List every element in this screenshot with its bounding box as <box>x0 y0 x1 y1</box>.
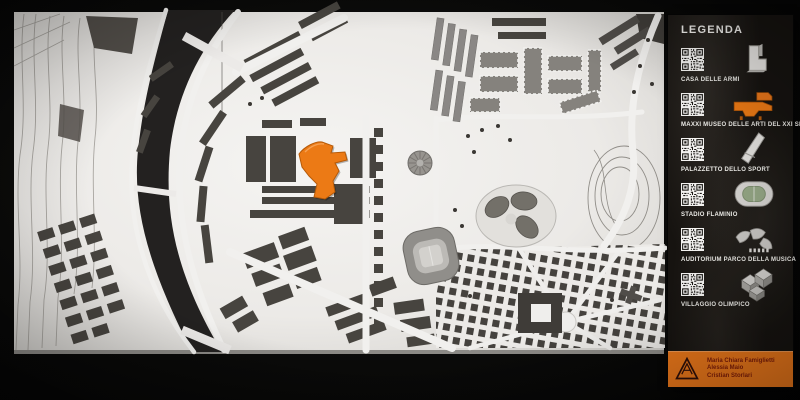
model-photo: LEGENDA CASA DELLE ARMI <box>0 0 800 400</box>
villaggio-olimpico-icon <box>727 268 781 300</box>
credit-names: Maria Chiara Famiglietti Alessia Maio Cr… <box>707 358 775 381</box>
auditorium-complex <box>476 185 556 247</box>
legend-item: STADIO FLAMINIO <box>681 179 781 218</box>
legend-item-label: STADIO FLAMINIO <box>681 212 781 218</box>
auditorium-icon <box>727 223 781 255</box>
legend-item-label: VILLAGGIO OLIMPICO <box>681 302 781 308</box>
qr-code-icon <box>681 228 704 251</box>
legend-item: PALAZZETTO DELLO SPORT <box>681 134 781 173</box>
qr-code-icon <box>681 93 704 116</box>
legend-item-label: AUDITORIUM PARCO DELLA MUSICA <box>681 257 781 263</box>
credit-name: Alessia Maio <box>707 365 775 373</box>
palazzetto-dome <box>408 151 432 175</box>
casa-delle-armi-icon <box>727 43 781 75</box>
legend-item-label: CASA DELLE ARMI <box>681 77 781 83</box>
credit-name: Cristian Storlari <box>707 373 775 381</box>
legend-title: LEGENDA <box>681 24 793 36</box>
qr-code-icon <box>681 48 704 71</box>
stadio-flaminio-icon <box>727 178 781 210</box>
qr-code-icon <box>681 183 704 206</box>
legend-item-label: PALAZZETTO DELLO SPORT <box>681 167 781 173</box>
legend-item: AUDITORIUM PARCO DELLA MUSICA <box>681 224 781 263</box>
legend-panel: LEGENDA CASA DELLE ARMI <box>668 15 793 387</box>
maxxi-museum-icon <box>727 88 781 120</box>
legend-item: VILLAGGIO OLIMPICO <box>681 269 781 308</box>
qr-code-icon <box>681 138 704 161</box>
legend-item-label: MAXXI MUSEO DELLE ARTI DEL XXI SEC. <box>681 122 781 128</box>
palazzetto-dello-sport-icon <box>727 133 781 165</box>
credits-strip: Maria Chiara Famiglietti Alessia Maio Cr… <box>668 351 793 387</box>
legend-item: MAXXI MUSEO DELLE ARTI DEL XXI SEC. <box>681 89 781 128</box>
am-triangle-logo <box>674 356 700 382</box>
credit-name: Maria Chiara Famiglietti <box>707 358 775 366</box>
qr-code-icon <box>681 273 704 296</box>
legend-item: CASA DELLE ARMI <box>681 44 781 83</box>
